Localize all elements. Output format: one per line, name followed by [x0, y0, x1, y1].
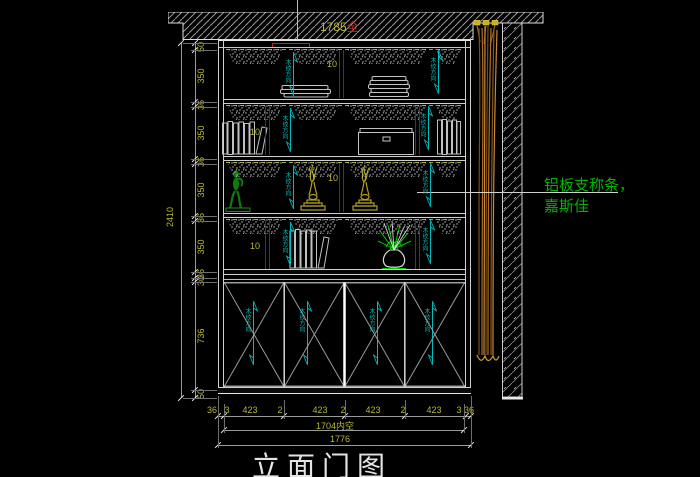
cabinet-right-frame [465, 40, 471, 394]
overall-height-label: 2410 [165, 207, 175, 227]
left-dim-label: 350 [196, 239, 206, 254]
curtain-hook-icon [492, 20, 498, 25]
grain-direction-annotation: 木纹方向 [420, 163, 435, 207]
grain-direction-label: 木纹方向 [283, 59, 290, 83]
left-dim-label: 736 [196, 328, 206, 343]
extension-line [191, 159, 217, 160]
row-of-books [222, 121, 268, 155]
left-dim-label: 350 [196, 182, 206, 197]
left-dim-label: 350 [196, 68, 206, 83]
grain-direction-label: 木纹方向 [280, 115, 287, 139]
grain-direction-annotation: 木纹方向 [428, 50, 443, 94]
row-of-books [288, 229, 336, 269]
extension-line [224, 404, 225, 433]
material-note: 铝板支称条， 嘉斯佳 [544, 176, 634, 218]
divider-thickness-label: 10 [328, 173, 338, 183]
grain-direction-annotation: 木纹方向 [280, 222, 295, 266]
extension-line [191, 282, 217, 283]
extension-line [191, 102, 217, 103]
cad-elevation-drawing: 1785全 [0, 0, 700, 477]
grain-direction-annotation: 木纹方向 [283, 52, 298, 96]
extension-line [405, 400, 406, 419]
shelf-board [224, 99, 465, 105]
extension-line [183, 43, 217, 44]
curtain-hook-icon [483, 20, 489, 25]
extension-line [471, 396, 472, 448]
extension-line [345, 400, 346, 419]
inner-width-label: 1704内空 [316, 419, 354, 432]
grain-direction-label: 木纹方向 [283, 172, 290, 196]
grain-direction-label: 木纹方向 [420, 227, 427, 251]
double-arrow-icon [426, 220, 435, 264]
ceiling-dim-value: 1785 [320, 20, 347, 34]
extension-line [218, 396, 219, 448]
shelf-board [224, 269, 465, 275]
cabinet-doors [224, 282, 465, 387]
glass-divider [339, 50, 344, 98]
extension-line [191, 390, 217, 391]
extension-line [191, 50, 217, 51]
divider-thickness-label: 10 [250, 241, 260, 251]
grain-direction-annotation: 木纹方向 [418, 106, 433, 150]
glass-divider [265, 220, 270, 269]
grain-direction-annotation: 木纹方向 [283, 165, 298, 209]
bottom-dim-label: 423 [242, 405, 257, 415]
divider-thickness-label: 10 [250, 127, 260, 137]
curtain [472, 20, 502, 378]
cabinet-baseboard [218, 387, 471, 394]
extension-line [191, 272, 217, 273]
countertop-line [224, 279, 465, 280]
extension-line [183, 398, 217, 399]
cabinet-top-frame [218, 40, 471, 48]
wall-column-section [502, 23, 523, 400]
bottom-dim-label: 36 [464, 405, 474, 415]
extension-line [191, 107, 217, 108]
material-note-line1: 铝板支称条， [544, 176, 634, 197]
extension-line [191, 278, 217, 279]
shelf-board [224, 213, 465, 219]
curtain-hook-icon [474, 20, 480, 25]
ceiling-dim-label: 1785全 [320, 18, 359, 35]
overall-width-label: 1776 [330, 434, 350, 444]
grain-direction-annotation: 木纹方向 [280, 108, 295, 152]
double-arrow-icon [289, 52, 298, 96]
bottom-dim-label: 423 [426, 405, 441, 415]
overall-height-dim-line [181, 43, 182, 398]
bottom-dim-label: 423 [365, 405, 380, 415]
double-arrow-icon [424, 106, 433, 150]
row-of-books [437, 119, 461, 155]
double-arrow-icon [426, 163, 435, 207]
grain-direction-label: 木纹方向 [428, 57, 435, 81]
double-arrow-icon [289, 165, 298, 209]
stacked-books [368, 76, 410, 98]
glass-divider [415, 220, 420, 269]
grain-direction-label: 木纹方向 [280, 229, 287, 253]
extension-line [464, 404, 465, 433]
double-arrow-icon [286, 108, 295, 152]
left-dim-label: 350 [196, 125, 206, 140]
ceiling-dim-suffix: 全 [347, 20, 359, 34]
extension-line [191, 221, 217, 222]
divider-thickness-label: 10 [327, 59, 337, 69]
extension-line [284, 400, 285, 419]
bottom-dim-label: 3 [224, 405, 229, 415]
material-note-line2: 嘉斯佳 [544, 197, 634, 218]
grain-direction-label: 木纹方向 [418, 113, 425, 137]
extension-line [191, 164, 217, 165]
storage-box [358, 128, 414, 155]
glass-divider [265, 106, 270, 155]
glass-divider [339, 163, 344, 212]
bottom-dim-label: 36 [207, 405, 217, 415]
double-arrow-icon [434, 50, 443, 94]
bottom-dim-label: 2 [277, 405, 282, 415]
drawing-title: 立面门图 [202, 445, 442, 477]
double-arrow-icon [286, 222, 295, 266]
shelf-board [224, 156, 465, 162]
grain-direction-label: 木纹方向 [420, 170, 427, 194]
extension-line [191, 216, 217, 217]
grain-direction-annotation: 木纹方向 [420, 220, 435, 264]
bottom-dim-label: 3 [456, 405, 461, 415]
bottom-dim-label: 423 [312, 405, 327, 415]
center-line [297, 0, 298, 41]
